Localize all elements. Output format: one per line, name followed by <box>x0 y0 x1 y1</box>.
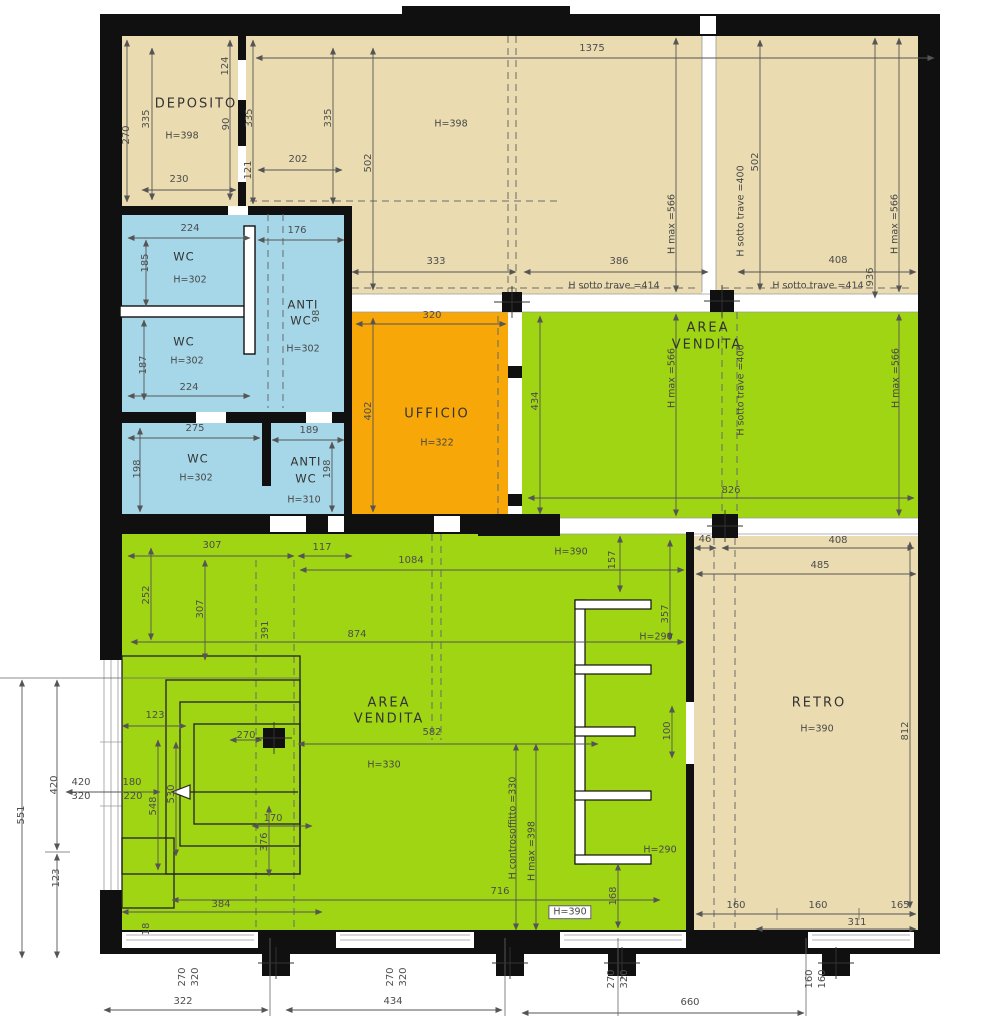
floor-plan: DEPOSITOH=398H=398WCH=302ANTIWC98H=302WC… <box>0 0 984 1024</box>
room-area-vendita-upper <box>522 312 918 518</box>
floor-plan-drawing <box>0 0 984 1024</box>
room-top-right <box>716 36 918 294</box>
room-retro <box>694 536 918 932</box>
room-wc-block <box>122 210 346 522</box>
room-ufficio <box>350 312 508 518</box>
room-deposito <box>122 36 238 206</box>
